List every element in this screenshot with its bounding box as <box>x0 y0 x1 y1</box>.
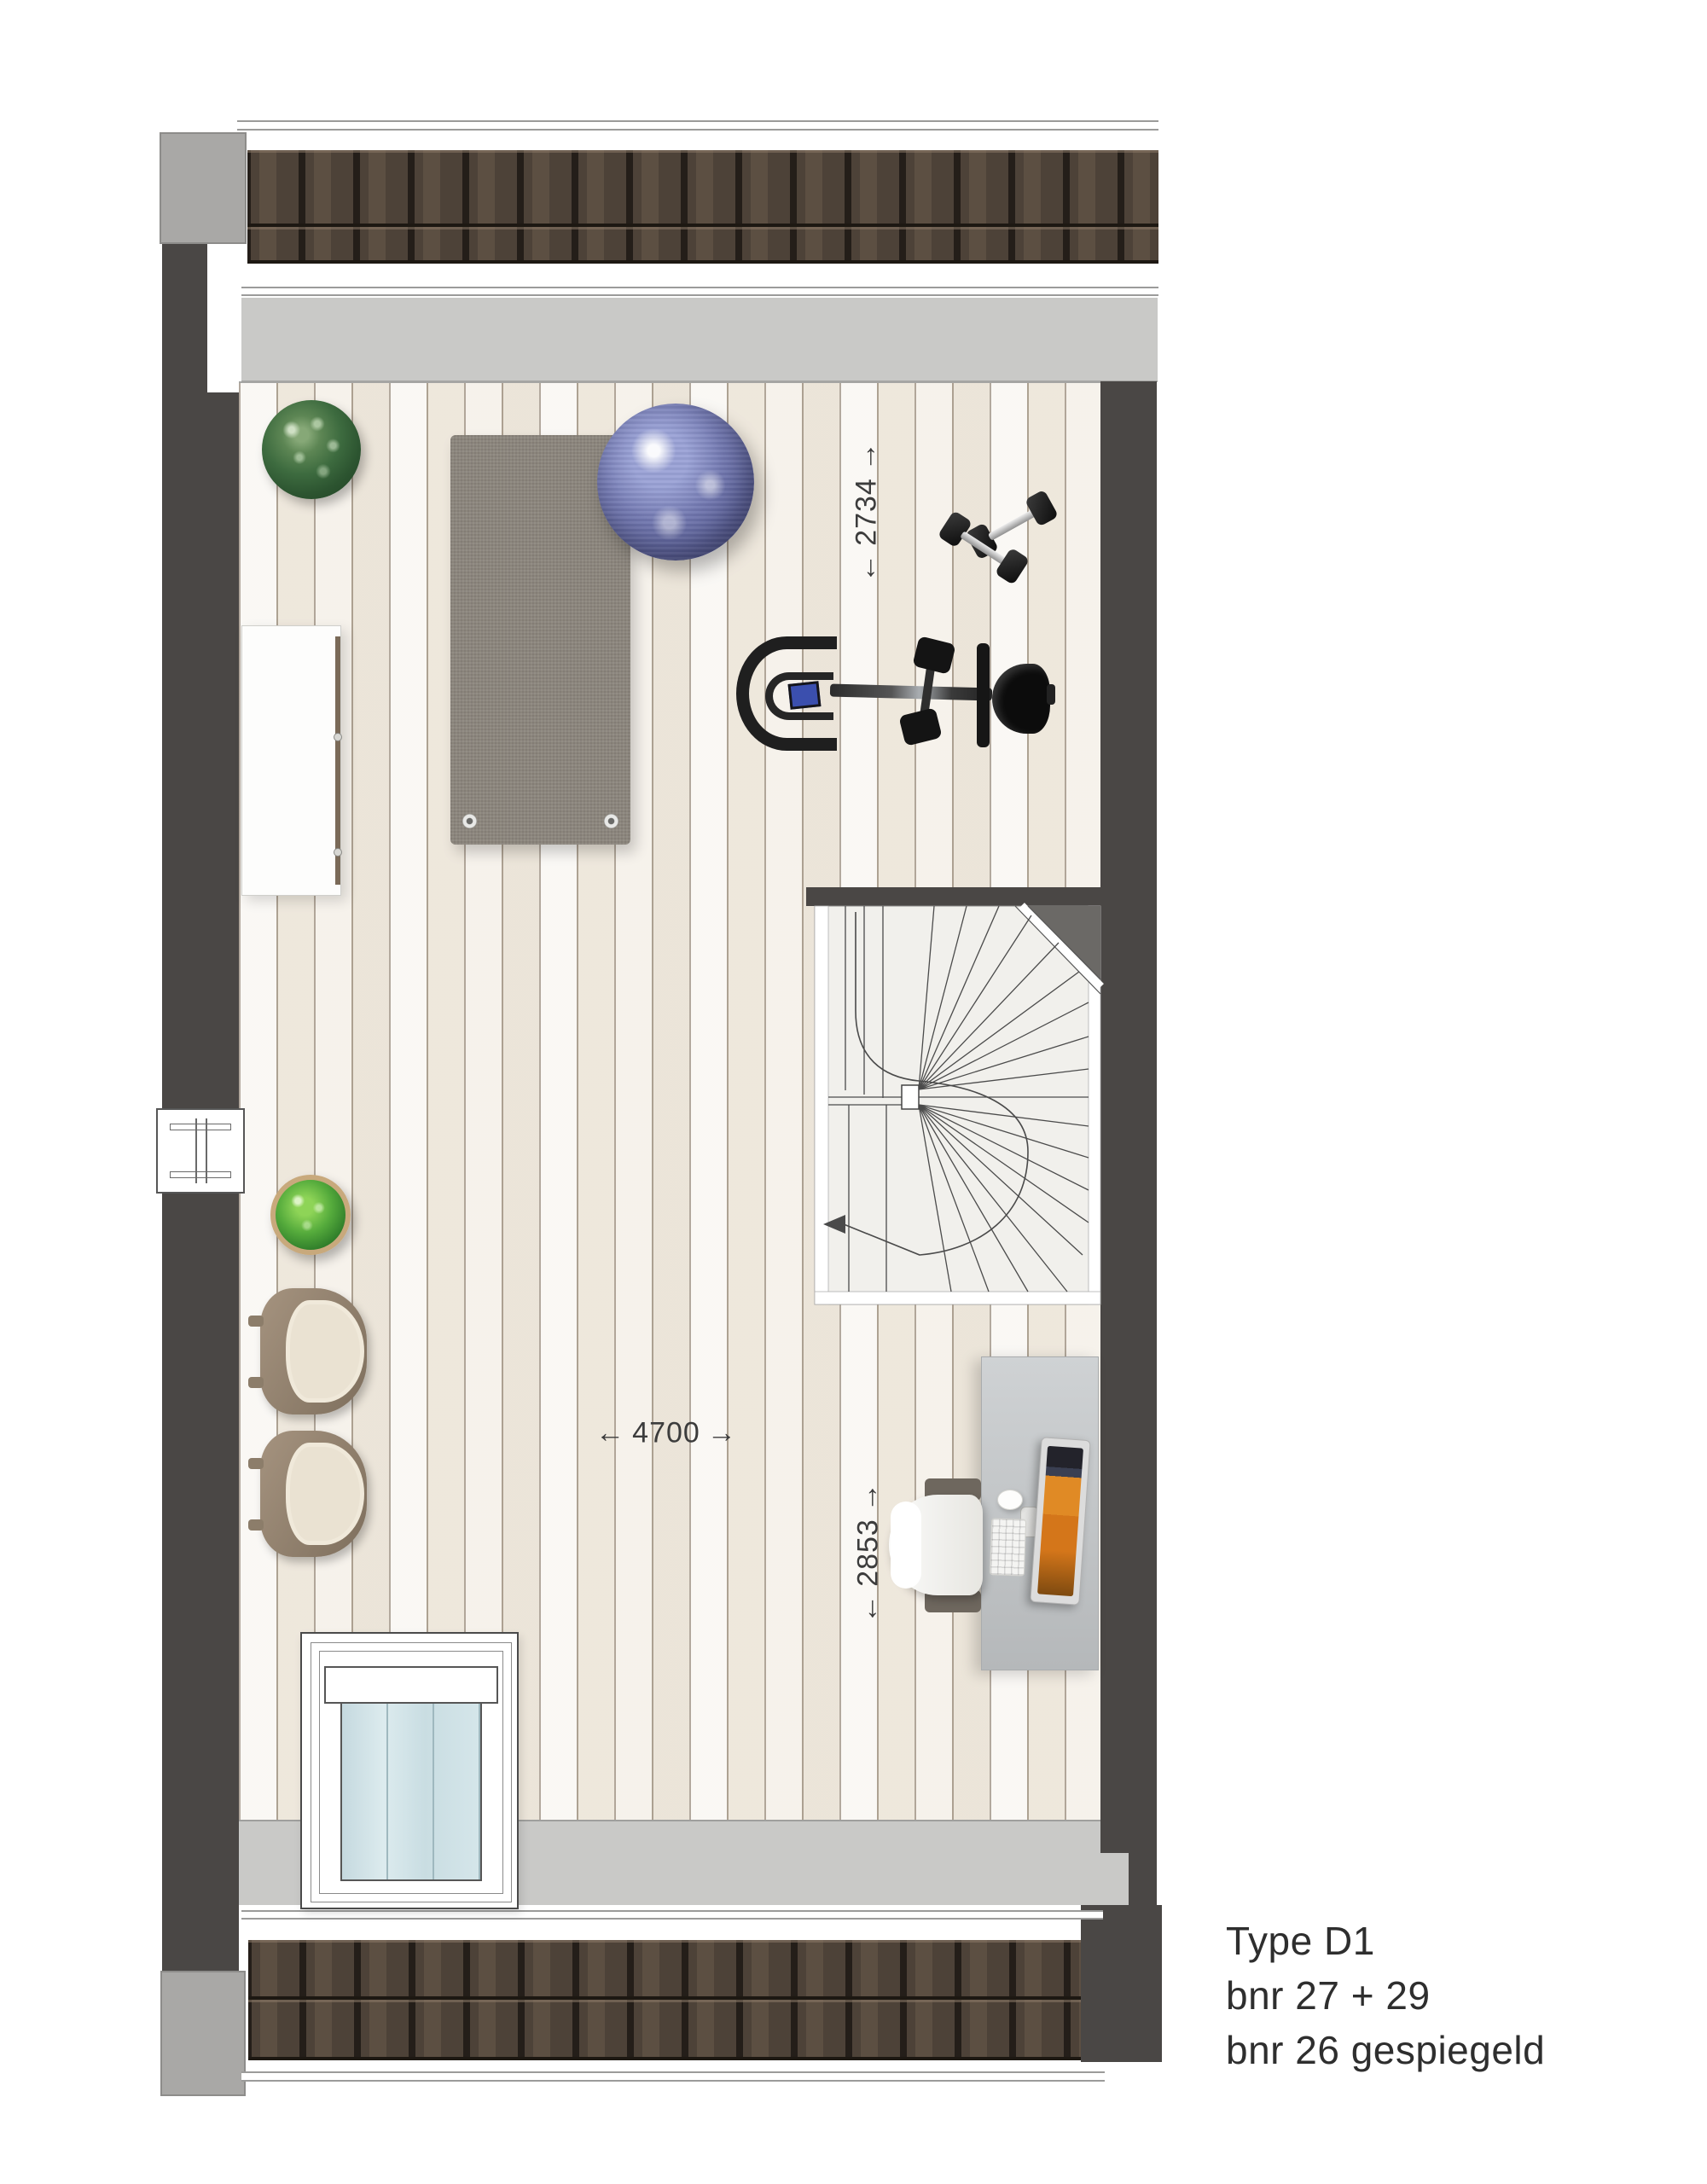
dim-value: 4700 <box>632 1417 700 1449</box>
right-wall-bottom <box>1081 1905 1162 2062</box>
bike-pedal <box>898 707 942 746</box>
skylight-roller <box>324 1666 498 1704</box>
roof-tile-row <box>248 1940 1081 2000</box>
armchair-leg <box>248 1377 264 1388</box>
skylight <box>300 1632 519 1909</box>
armchair-cushion <box>286 1300 364 1403</box>
roof-ridge-lines-top <box>237 120 1158 131</box>
monitor-screen <box>1037 1446 1083 1597</box>
exercise-bike <box>729 630 1058 766</box>
gutter-lines-bottom <box>241 2071 1105 2082</box>
dimension-desk-zone-depth: ←2853→ <box>852 1478 885 1627</box>
chimney-top-left <box>160 132 247 244</box>
dim-arrow-left: ← <box>851 553 883 583</box>
bike-pedal <box>912 636 955 675</box>
stair-center-post <box>902 1085 919 1109</box>
armchair-leg <box>248 1519 264 1531</box>
cabinet-hinge <box>334 733 342 741</box>
window-mullion <box>206 1118 207 1183</box>
dim-arrow-right: → <box>852 1482 885 1512</box>
right-wall <box>1100 381 1157 1905</box>
armchair-cushion <box>286 1443 364 1545</box>
caption-bnr: bnr 27 + 29 <box>1226 1968 1687 2023</box>
slope-notch-right <box>1100 1853 1129 1905</box>
eaves-lines-bottom <box>241 1910 1103 1920</box>
dim-arrow-right: → <box>851 441 883 471</box>
window-mullion <box>195 1118 197 1183</box>
chair-back <box>891 1501 921 1589</box>
window-sill <box>170 1124 231 1130</box>
dimension-room-width: ←4700→ <box>592 1417 740 1450</box>
armchair-leg <box>248 1458 264 1469</box>
roof-tiles-top <box>247 150 1158 264</box>
bike-stabilizer <box>977 643 990 747</box>
plan-caption: Type D1 bnr 27 + 29 bnr 26 gespiegeld <box>1226 1914 1687 2077</box>
plant-top-icon <box>262 400 361 499</box>
floorplan-canvas: ←2734→ ←4700→ ←2853→ Type D1 bnr 27 + 29… <box>0 0 1707 2184</box>
bike-saddle <box>992 664 1050 734</box>
roof-tiles-bottom <box>248 1940 1081 2060</box>
window-sill <box>170 1171 231 1178</box>
dumbbell-head <box>938 510 973 548</box>
skylight-glass <box>340 1702 482 1881</box>
desk-chair <box>889 1478 984 1612</box>
dumbbell-head <box>995 548 1030 585</box>
left-wall-upper <box>162 244 207 394</box>
dumbbells <box>938 497 1058 586</box>
cabinet-hinge <box>334 848 342 857</box>
dim-arrow-left: ← <box>595 1417 625 1449</box>
dim-arrow-right: → <box>707 1417 737 1449</box>
dim-value: 2853 <box>852 1519 885 1587</box>
spiral-staircase <box>804 883 1105 1310</box>
caption-mirrored: bnr 26 gespiegeld <box>1226 2023 1687 2077</box>
sideboard-cabinet <box>241 625 341 896</box>
caption-type: Type D1 <box>1226 1914 1687 1968</box>
mat-grommet <box>462 814 477 828</box>
chimney-bottom-left <box>160 1971 246 2096</box>
roof-tile-row <box>248 2000 1081 2060</box>
armchair-2 <box>253 1429 367 1559</box>
roof-tile-row <box>247 227 1158 264</box>
plant-left-icon <box>270 1175 351 1255</box>
mouse <box>997 1490 1023 1510</box>
roof-slope-band-top <box>241 298 1158 382</box>
dim-value: 2734 <box>851 478 883 546</box>
bike-frame <box>830 684 992 701</box>
dim-arrow-left: ← <box>852 1594 885 1623</box>
dimension-attic-width: ←2734→ <box>851 438 884 586</box>
window-left <box>156 1108 245 1194</box>
bike-display <box>788 681 822 710</box>
stair-wall <box>806 887 1103 906</box>
mat-grommet <box>604 814 618 828</box>
eaves-lines-top <box>241 287 1158 296</box>
armchair-1 <box>253 1287 367 1416</box>
roof-tile-row <box>247 150 1158 227</box>
armchair-leg <box>248 1316 264 1327</box>
bike-knob <box>1047 684 1055 705</box>
keyboard <box>990 1518 1026 1576</box>
dumbbell-bar <box>988 509 1036 541</box>
exercise-ball <box>597 404 754 561</box>
